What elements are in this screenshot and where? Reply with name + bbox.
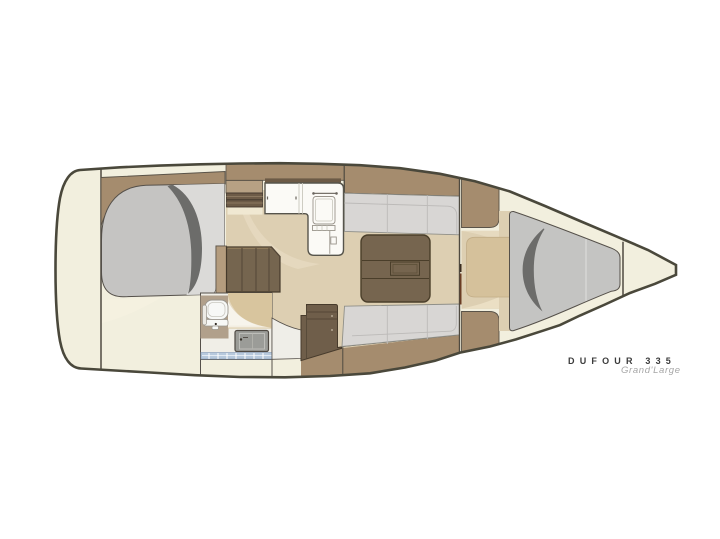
svg-text:Grand'Large: Grand'Large: [621, 365, 680, 376]
